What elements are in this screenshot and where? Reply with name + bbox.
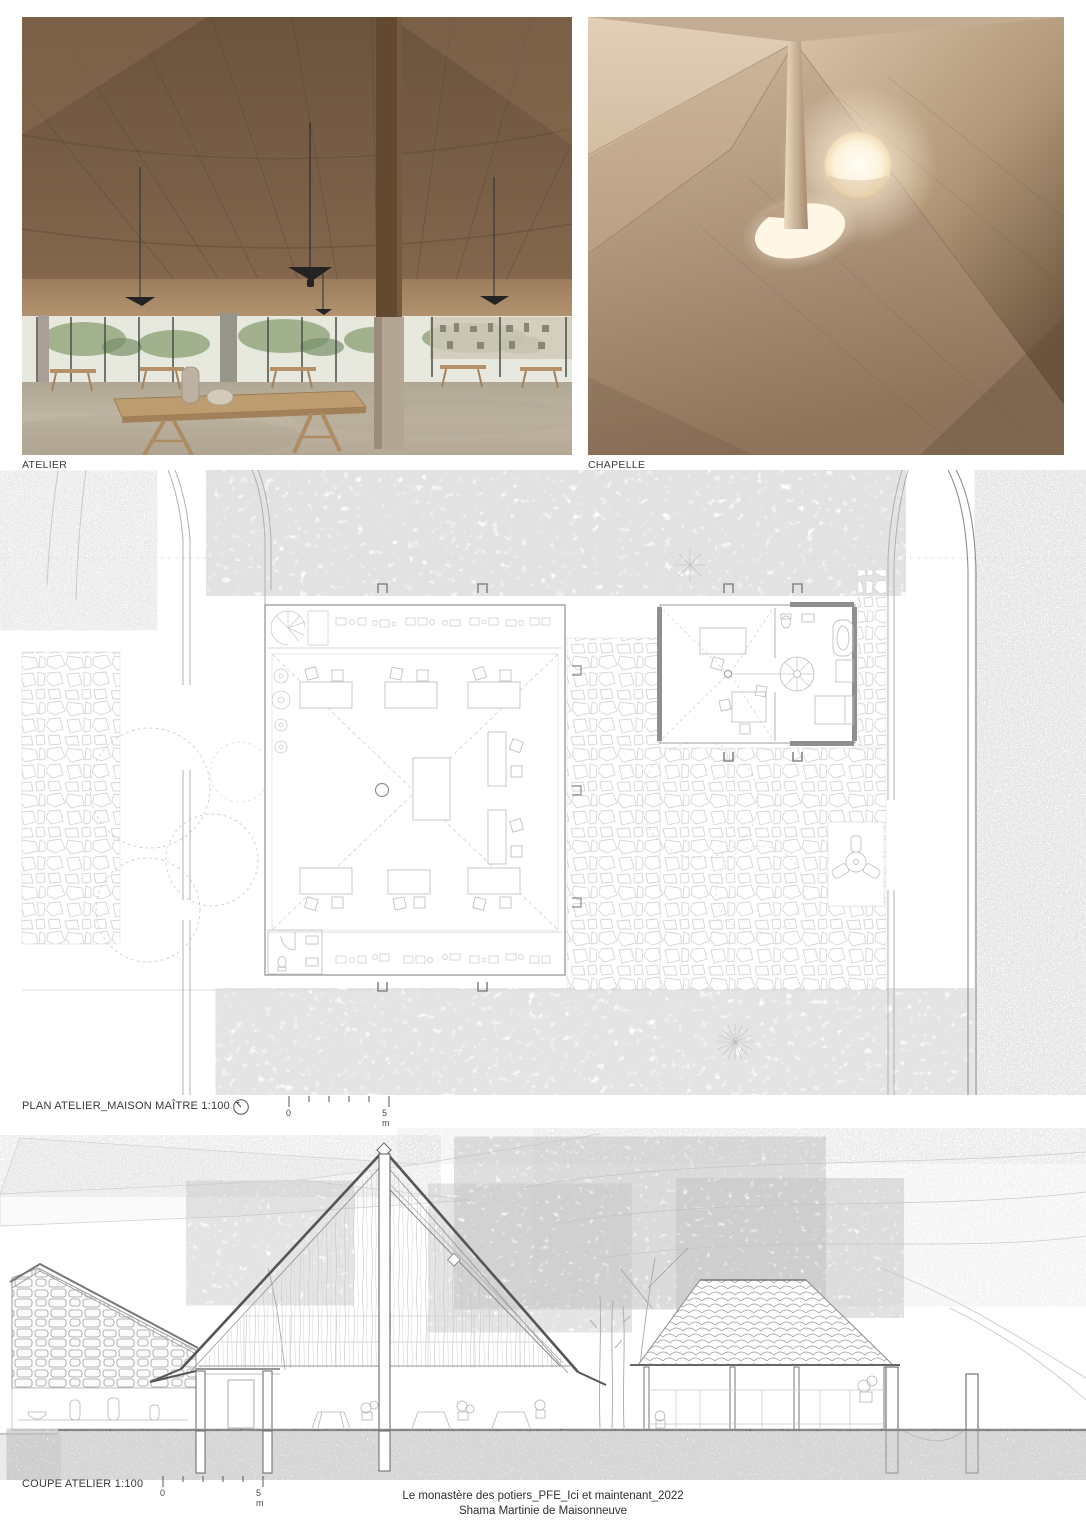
chapelle-render-image	[588, 17, 1064, 455]
chapelle-render-figure	[588, 17, 1064, 455]
atelier-window-band	[22, 313, 572, 385]
central-column-plan	[376, 784, 389, 797]
presentation-board: { "figures": { "atelier": { "caption": "…	[0, 0, 1086, 1536]
garden-bottom-band	[250, 993, 940, 1090]
central-mast	[379, 1154, 390, 1431]
plan-drawing	[0, 470, 1086, 1095]
ground	[0, 1430, 1086, 1480]
tall-vase	[182, 367, 199, 403]
coupe-figure	[0, 1128, 1086, 1480]
plan-figure	[0, 470, 1086, 1095]
coupe-drawing	[0, 1128, 1086, 1480]
bamboo-clump	[590, 1296, 630, 1428]
plan-scale-five: 5 m	[382, 1108, 396, 1128]
tree-canopy-band	[238, 474, 874, 590]
author-name: Shama Martinie de Maisonneuve	[0, 1504, 1086, 1519]
atelier-render-image	[22, 17, 572, 455]
meadow-right	[980, 470, 1086, 1095]
plan-scale-zero: 0	[286, 1108, 291, 1118]
meadow-top-left	[0, 478, 150, 623]
stone-building	[10, 1264, 198, 1430]
project-title: Le monastère des potiers_PFE_Ici et main…	[0, 1489, 1086, 1504]
bowl	[207, 389, 233, 405]
north-arrow-icon	[232, 1098, 250, 1116]
spiral-stair-maison	[780, 657, 814, 691]
plan-atelier-building	[265, 605, 581, 975]
atelier-central-column	[374, 17, 404, 449]
plan-scale-bar: 0 5 m	[286, 1096, 396, 1120]
interior-tables	[312, 1400, 545, 1428]
atelier-render-figure	[22, 17, 572, 455]
plan-caption: PLAN ATELIER_MAISON MAÎTRE 1:100	[22, 1100, 230, 1112]
plan-maison-maitre	[657, 602, 857, 746]
